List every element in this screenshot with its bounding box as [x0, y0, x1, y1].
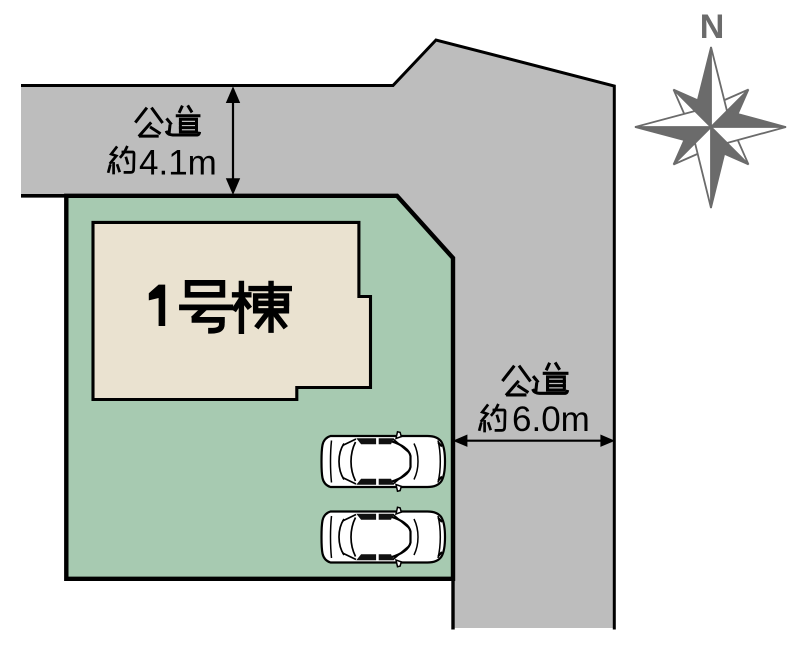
svg-text:N: N — [700, 8, 725, 46]
svg-text:6.0m: 6.0m — [512, 400, 590, 439]
svg-text:4.1m: 4.1m — [139, 144, 217, 183]
